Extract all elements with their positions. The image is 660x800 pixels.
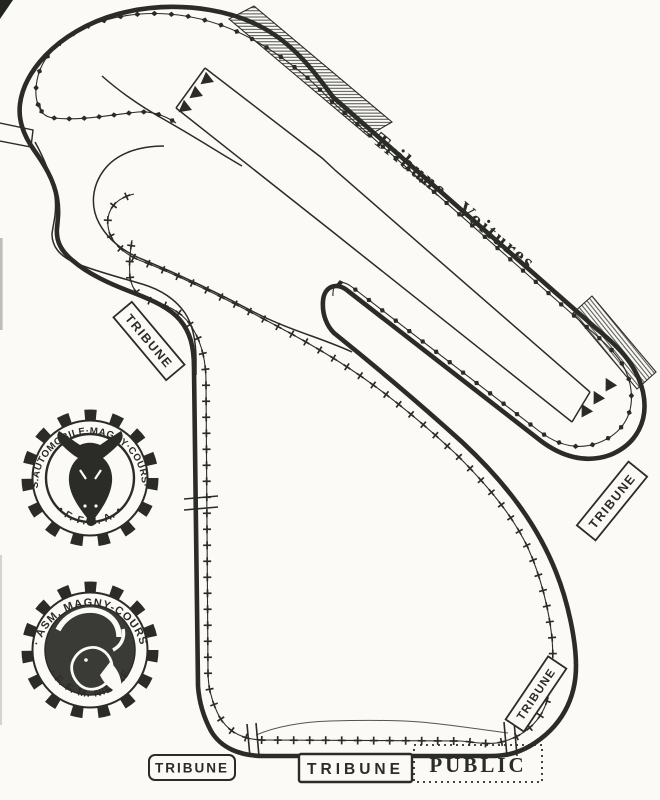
- circuit-map: Tribune Voitures TRIBUNE TRIBUNE TRIBUNE…: [0, 0, 660, 800]
- tribune-stand-label: TRIBUNE: [307, 761, 404, 778]
- tribune-stand-label: TRIBUNE: [155, 761, 229, 776]
- circuit-map-page: Tribune Voitures TRIBUNE TRIBUNE TRIBUNE…: [0, 0, 660, 800]
- tribune-stand-bottom-small: TRIBUNE: [149, 755, 235, 780]
- tribune-stand-bottom-large: TRIBUNE: [299, 754, 412, 782]
- scan-edge-streak: [0, 238, 3, 330]
- scan-edge-streak: [0, 555, 2, 725]
- public-area-label: PUBLIC: [429, 753, 526, 777]
